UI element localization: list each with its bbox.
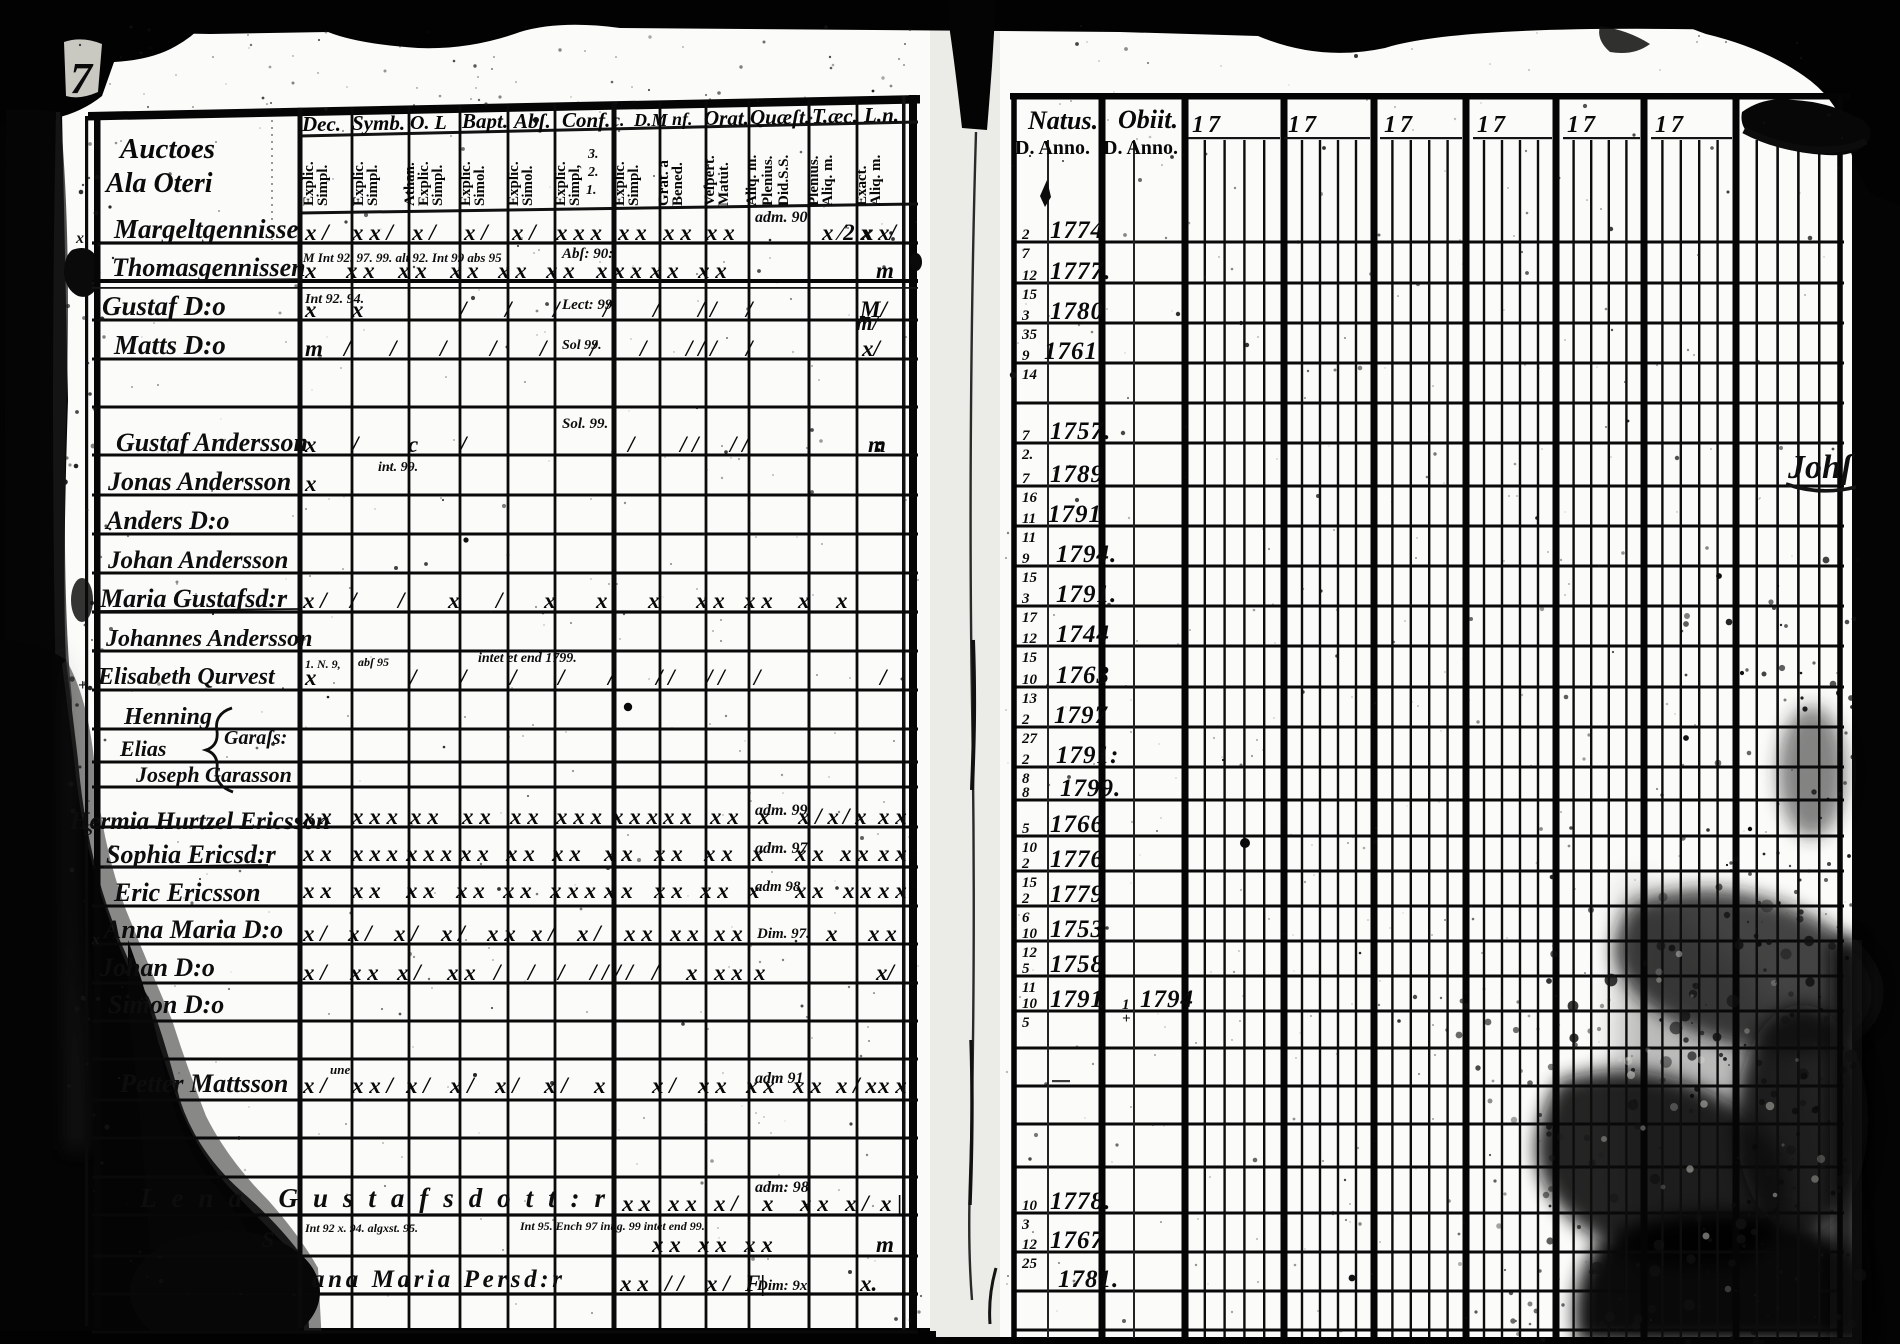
svg-text:Simpl.: Simpl. bbox=[365, 164, 381, 206]
svg-text:11: 11 bbox=[1022, 511, 1036, 527]
svg-text:x: x bbox=[861, 220, 874, 245]
svg-text:x: x bbox=[685, 960, 698, 985]
svg-text:x x x: x x x bbox=[351, 804, 398, 829]
svg-text:2.: 2. bbox=[587, 165, 599, 180]
svg-text:x: x bbox=[304, 432, 317, 457]
svg-text:Abſ.: Abſ. bbox=[512, 109, 551, 133]
svg-text:Gustaf Andersson: Gustaf Andersson bbox=[116, 428, 308, 457]
svg-text:/ /: / / bbox=[728, 432, 751, 457]
svg-text:7: 7 bbox=[70, 54, 94, 103]
svg-text:x x: x x bbox=[651, 1232, 681, 1257]
svg-text:15: 15 bbox=[1022, 287, 1038, 303]
svg-text:Natus.: Natus. bbox=[1027, 106, 1098, 135]
svg-text:3: 3 bbox=[1021, 1217, 1030, 1233]
svg-text:x x: x x bbox=[409, 804, 439, 829]
svg-text:7: 7 bbox=[1022, 428, 1030, 444]
svg-text:Dim. 97.: Dim. 97. bbox=[756, 926, 810, 942]
svg-text:+: + bbox=[78, 677, 87, 694]
svg-text:2: 2 bbox=[1021, 856, 1030, 872]
svg-text:Matts D:o: Matts D:o bbox=[113, 330, 226, 360]
svg-text:x x: x x bbox=[877, 804, 907, 829]
svg-text:x /: x / bbox=[411, 220, 438, 245]
svg-text:x x: x x bbox=[867, 921, 897, 946]
svg-text:x x x: x x x bbox=[549, 878, 596, 903]
svg-text:Obiit.: Obiit. bbox=[1118, 105, 1178, 134]
svg-text:12: 12 bbox=[1022, 268, 1038, 284]
svg-text:x: x bbox=[91, 932, 100, 948]
svg-text:x x: x x bbox=[619, 1271, 649, 1296]
svg-text:x x: x x bbox=[662, 804, 692, 829]
svg-text:2: 2 bbox=[1021, 712, 1030, 728]
svg-text:x x: x x bbox=[695, 588, 725, 613]
svg-text:Int 92 x. 94. algxst. 95.: Int 92 x. 94. algxst. 95. bbox=[304, 1221, 418, 1235]
svg-text:x x: x x bbox=[705, 220, 735, 245]
svg-text:x x: x x bbox=[302, 841, 332, 866]
svg-text:x/: x/ bbox=[875, 960, 897, 985]
svg-text:m̅/: m̅/ bbox=[856, 311, 880, 335]
svg-text:x x: x x bbox=[603, 878, 633, 903]
svg-text:12: 12 bbox=[1022, 1237, 1038, 1253]
svg-text:2: 2 bbox=[1021, 752, 1030, 768]
svg-text:9: 9 bbox=[1022, 551, 1030, 567]
svg-text:1779: 1779 bbox=[1050, 881, 1104, 908]
svg-text:x: x bbox=[753, 960, 766, 985]
svg-text:une: une bbox=[330, 1062, 350, 1077]
svg-text:x / x: x / x bbox=[797, 804, 839, 829]
svg-text:x /: x / bbox=[440, 921, 467, 946]
svg-text:x: x bbox=[304, 471, 317, 496]
svg-text:Thomasgennissen: Thomasgennissen bbox=[112, 253, 306, 282]
svg-text:2: 2 bbox=[1021, 891, 1030, 907]
svg-text:x x: x x bbox=[877, 841, 907, 866]
svg-text:x x: x x bbox=[743, 1232, 773, 1257]
svg-text:x x: x x bbox=[703, 841, 733, 866]
svg-text:int. 99.: int. 99. bbox=[378, 460, 418, 475]
svg-text:x /: x / bbox=[576, 921, 603, 946]
svg-text:Petter Mattsson: Petter Mattsson bbox=[119, 1069, 288, 1098]
svg-text:x x: x x bbox=[545, 258, 575, 283]
svg-text:x x: x x bbox=[351, 878, 381, 903]
svg-text:x: x bbox=[593, 1073, 606, 1098]
svg-text:x x /: x x / bbox=[351, 220, 396, 245]
svg-text:Eric Ericsson: Eric Ericsson bbox=[113, 878, 261, 907]
svg-text:S: S bbox=[84, 822, 93, 839]
svg-text:Simol.: Simol. bbox=[472, 165, 488, 206]
svg-text:abſ 95: abſ 95 bbox=[358, 655, 389, 669]
svg-text:Simpl,: Simpl, bbox=[567, 164, 583, 206]
svg-text:x: x bbox=[647, 588, 660, 613]
svg-text:x: x bbox=[797, 588, 810, 613]
svg-text:m: m bbox=[876, 1232, 894, 1257]
svg-text:O. L: O. L bbox=[410, 112, 447, 134]
svg-text:Simol.: Simol. bbox=[520, 165, 536, 206]
svg-text:Aliq. m.: Aliq. m. bbox=[868, 154, 884, 206]
svg-text:x x: x x bbox=[405, 878, 435, 903]
svg-text:10: 10 bbox=[1022, 1198, 1038, 1214]
svg-text:1766: 1766 bbox=[1050, 811, 1104, 838]
svg-text:1763: 1763 bbox=[1056, 662, 1110, 689]
svg-text:Margeltgennisse: Margeltgennisse bbox=[113, 214, 299, 244]
svg-text:x /: x / bbox=[302, 1073, 329, 1098]
svg-text:Did.S.S.: Did.S.S. bbox=[776, 154, 792, 206]
svg-text:x x: x x bbox=[653, 878, 683, 903]
svg-text:/ / /: / / / bbox=[684, 336, 719, 361]
svg-text:x / x: x / x bbox=[835, 1073, 877, 1098]
svg-text:17: 17 bbox=[1655, 112, 1687, 138]
svg-text:11: 11 bbox=[1022, 530, 1036, 546]
svg-text:x x: x x bbox=[745, 1073, 775, 1098]
svg-text:3.: 3. bbox=[587, 147, 599, 162]
svg-text:adm. 90.: adm. 90. bbox=[755, 209, 811, 226]
svg-text:Henning: Henning bbox=[123, 704, 212, 730]
svg-text:x x: x x bbox=[509, 804, 539, 829]
svg-text:x |: x | bbox=[879, 1191, 902, 1216]
svg-text:x x: x x bbox=[792, 1073, 822, 1098]
svg-text:x /: x / bbox=[347, 921, 374, 946]
svg-text:Johſ: Johſ bbox=[1787, 449, 1856, 486]
svg-text:7: 7 bbox=[1022, 246, 1030, 262]
svg-text:x: x bbox=[351, 297, 364, 322]
svg-text:Quæſt.: Quæſt. bbox=[750, 105, 810, 129]
svg-text:x x: x x bbox=[449, 258, 479, 283]
svg-text:Simpl.: Simpl. bbox=[315, 164, 331, 206]
svg-text:intet et end 1799.: intet et end 1799. bbox=[478, 651, 577, 666]
svg-text:x x: x x bbox=[713, 960, 743, 985]
svg-text:L.n.: L.n. bbox=[863, 103, 899, 127]
svg-text:1776: 1776 bbox=[1050, 846, 1104, 873]
svg-text:25: 25 bbox=[1021, 1256, 1038, 1272]
svg-text:x x: x x bbox=[662, 220, 692, 245]
svg-text:1791: 1791 bbox=[1050, 986, 1104, 1013]
svg-text:x /: x / bbox=[396, 960, 423, 985]
svg-text:x /: x / bbox=[405, 1073, 432, 1098]
svg-text:x x: x x bbox=[617, 220, 647, 245]
svg-text:1757.: 1757. bbox=[1050, 418, 1111, 445]
svg-text:1799.: 1799. bbox=[1060, 775, 1121, 802]
svg-text:1774: 1774 bbox=[1050, 217, 1104, 244]
svg-text:Aliq. m.: Aliq. m. bbox=[820, 154, 836, 206]
svg-text:x: x bbox=[304, 665, 317, 690]
svg-text:x x: x x bbox=[653, 841, 683, 866]
svg-text:x x: x x bbox=[302, 804, 332, 829]
svg-text:Simpl.: Simpl. bbox=[430, 164, 446, 206]
svg-text:2: 2 bbox=[1021, 227, 1030, 243]
svg-text:/ /: / / bbox=[654, 665, 677, 690]
svg-text:x x x: x x x bbox=[351, 841, 398, 866]
svg-text:9: 9 bbox=[1022, 348, 1030, 364]
svg-text:x x: x x bbox=[877, 1073, 907, 1098]
svg-text:x x: x x bbox=[649, 258, 679, 283]
svg-text:x x: x x bbox=[839, 841, 869, 866]
svg-text:Int 95. Ench 97 int g. 99 inte: Int 95. Ench 97 int g. 99 intet end 99. bbox=[519, 1219, 705, 1233]
svg-text:/ /: / / bbox=[663, 1271, 686, 1296]
svg-text:17: 17 bbox=[1477, 112, 1509, 138]
svg-text:/ / / /: / / / / bbox=[588, 960, 635, 985]
svg-text:1753: 1753 bbox=[1050, 916, 1104, 943]
svg-text:1767: 1767 bbox=[1050, 1227, 1105, 1254]
svg-text:+: + bbox=[1122, 1011, 1131, 1027]
svg-text:Elisabeth Qurvest: Elisabeth Qurvest bbox=[97, 664, 276, 690]
svg-text:Conf.: Conf. bbox=[562, 108, 610, 132]
svg-text:1778.: 1778. bbox=[1050, 1188, 1111, 1215]
svg-text:x /: x / bbox=[302, 588, 329, 613]
svg-text:x x: x x bbox=[794, 841, 824, 866]
svg-text:1791: 1791 bbox=[1048, 501, 1102, 528]
svg-text:Anna Maria D:o: Anna Maria D:o bbox=[102, 915, 283, 944]
svg-text:17: 17 bbox=[1022, 610, 1038, 626]
svg-text:x x: x x bbox=[455, 878, 485, 903]
svg-text:x x: x x bbox=[713, 921, 743, 946]
svg-text:Simpl.: Simpl. bbox=[626, 164, 642, 206]
svg-text:5: 5 bbox=[1022, 961, 1030, 977]
svg-text:3: 3 bbox=[1021, 591, 1030, 607]
svg-text:8: 8 bbox=[1022, 785, 1030, 801]
svg-text:x/: x/ bbox=[877, 220, 899, 245]
svg-text:x x x: x x x bbox=[595, 258, 642, 283]
svg-text:17: 17 bbox=[1567, 112, 1599, 138]
svg-text:nf.: nf. bbox=[672, 109, 693, 129]
svg-text:Johan D:o: Johan D:o bbox=[99, 953, 215, 982]
svg-text:x x x: x x x bbox=[555, 804, 602, 829]
svg-text:x x /: x x / bbox=[351, 1073, 396, 1098]
svg-text:x x: x x bbox=[486, 921, 516, 946]
svg-text:13: 13 bbox=[1022, 691, 1038, 707]
svg-text:x: x bbox=[595, 588, 608, 613]
svg-text:Elias: Elias bbox=[119, 736, 166, 761]
svg-text:x /: x / bbox=[463, 220, 490, 245]
svg-text:x/: x/ bbox=[861, 336, 883, 361]
svg-text:14: 14 bbox=[1022, 367, 1038, 383]
svg-text:x x: x x bbox=[743, 588, 773, 613]
svg-text:10: 10 bbox=[1022, 672, 1038, 688]
svg-text:17: 17 bbox=[1192, 112, 1224, 138]
svg-text:12: 12 bbox=[1022, 945, 1038, 961]
svg-text:x /: x / bbox=[705, 1271, 732, 1296]
svg-text:x x: x x bbox=[551, 841, 581, 866]
svg-text:11: 11 bbox=[1022, 980, 1036, 996]
svg-text:D.M: D.M bbox=[633, 110, 668, 130]
svg-text:10: 10 bbox=[1022, 926, 1038, 942]
svg-text:x x: x x bbox=[603, 841, 633, 866]
svg-text:x.: x. bbox=[859, 1271, 877, 1296]
svg-text:Bened.: Bened. bbox=[670, 162, 686, 206]
svg-text:x x: x x bbox=[349, 960, 379, 985]
svg-text:x x: x x bbox=[502, 878, 532, 903]
svg-text:x x: x x bbox=[697, 1232, 727, 1257]
svg-text::: : bbox=[876, 432, 884, 457]
svg-text:x x: x x bbox=[497, 258, 527, 283]
svg-text:x x: x x bbox=[397, 258, 427, 283]
svg-text:x /: x / bbox=[449, 1073, 476, 1098]
svg-text:x x: x x bbox=[877, 878, 907, 903]
svg-text:x x: x x bbox=[794, 878, 824, 903]
svg-text:x x x: x x x bbox=[555, 220, 602, 245]
svg-text:x: x bbox=[304, 258, 317, 283]
svg-text:1794: 1794 bbox=[1140, 986, 1194, 1013]
svg-text:Dec.: Dec. bbox=[301, 112, 341, 136]
svg-text:x /: x / bbox=[713, 1191, 740, 1216]
svg-text:x x: x x bbox=[459, 841, 489, 866]
svg-text:1758: 1758 bbox=[1050, 951, 1104, 978]
svg-text:Hermia Hurtzel Ericsson: Hermia Hurtzel Ericsson bbox=[69, 808, 330, 835]
svg-text:x /: x / bbox=[494, 1073, 521, 1098]
svg-text:x: x bbox=[751, 841, 764, 866]
svg-text:x /: x / bbox=[304, 220, 331, 245]
svg-text:7: 7 bbox=[1022, 471, 1030, 487]
svg-text:/ /: / / bbox=[696, 297, 719, 322]
svg-text:15: 15 bbox=[1022, 570, 1038, 586]
svg-text:1781.: 1781. bbox=[1058, 1266, 1119, 1293]
svg-text:1789: 1789 bbox=[1050, 461, 1104, 488]
svg-text:x x x: x x x bbox=[611, 804, 658, 829]
svg-text:17: 17 bbox=[1288, 112, 1320, 138]
svg-text:x x: x x bbox=[621, 1191, 651, 1216]
svg-text:1777.: 1777. bbox=[1050, 258, 1111, 285]
svg-text:F|: F| bbox=[744, 1271, 765, 1296]
svg-text:Bapt.: Bapt. bbox=[461, 109, 508, 133]
svg-text:S: S bbox=[262, 1227, 274, 1252]
svg-text:Sol. 99.: Sol. 99. bbox=[562, 416, 608, 432]
svg-text:Orat.: Orat. bbox=[704, 106, 749, 130]
svg-text:x x: x x bbox=[461, 804, 491, 829]
svg-text:x x: x x bbox=[699, 878, 729, 903]
svg-text:Ala Oteri: Ala Oteri bbox=[104, 168, 213, 199]
svg-text:c.: c. bbox=[612, 110, 625, 130]
svg-text:x /: x / bbox=[844, 1191, 871, 1216]
svg-text:Matut.: Matut. bbox=[716, 162, 732, 206]
svg-text:1761: 1761 bbox=[1044, 338, 1098, 365]
svg-text:Simon D:o: Simon D:o bbox=[108, 990, 224, 1019]
svg-text:x: x bbox=[757, 804, 770, 829]
svg-text:x: x bbox=[447, 588, 460, 613]
svg-text:x x: x x bbox=[505, 841, 535, 866]
svg-text:5: 5 bbox=[1022, 1015, 1030, 1031]
svg-text:x x: x x bbox=[697, 1073, 727, 1098]
svg-text:1797: 1797 bbox=[1054, 702, 1109, 729]
svg-text:Joseph Garasson: Joseph Garasson bbox=[135, 762, 292, 787]
svg-text:ana Maria Persd:r: ana Maria Persd:r bbox=[312, 1266, 562, 1293]
svg-text:Auctoes: Auctoes bbox=[118, 133, 215, 165]
svg-text:T.æc.: T.æc. bbox=[812, 104, 858, 128]
svg-text:10: 10 bbox=[1022, 996, 1038, 1012]
svg-text:35: 35 bbox=[1021, 327, 1038, 343]
svg-text:Anders D:o: Anders D:o bbox=[104, 506, 230, 535]
svg-text:x /: x / bbox=[543, 1073, 570, 1098]
svg-text:27: 27 bbox=[1021, 731, 1038, 747]
svg-text:1794.: 1794. bbox=[1056, 541, 1117, 568]
svg-text:15: 15 bbox=[1022, 875, 1038, 891]
svg-text:12: 12 bbox=[1022, 631, 1038, 647]
svg-text:Johan Andersson: Johan Andersson bbox=[107, 547, 288, 574]
svg-text:D. Anno.: D. Anno. bbox=[1015, 137, 1090, 159]
svg-text:1.: 1. bbox=[586, 183, 597, 198]
svg-text:x x: x x bbox=[842, 878, 872, 903]
svg-text:m: m bbox=[876, 258, 894, 283]
svg-text:5: 5 bbox=[1022, 821, 1030, 837]
svg-text:/ /: / / bbox=[704, 665, 727, 690]
svg-text:1780: 1780 bbox=[1050, 298, 1104, 325]
svg-text:x /: x / bbox=[651, 1073, 678, 1098]
svg-text:x x: x x bbox=[667, 1191, 697, 1216]
svg-text:10: 10 bbox=[1022, 840, 1038, 856]
svg-text:/ x: / x bbox=[841, 804, 867, 829]
svg-text:x x: x x bbox=[446, 960, 476, 985]
svg-text:x /: x / bbox=[393, 921, 420, 946]
svg-text:/ /: / / bbox=[678, 432, 701, 457]
svg-text:x x: x x bbox=[345, 258, 375, 283]
svg-text:16: 16 bbox=[1022, 490, 1038, 506]
svg-text:x: x bbox=[761, 1191, 774, 1216]
svg-text:x x: x x bbox=[709, 804, 739, 829]
svg-text:c: c bbox=[408, 432, 418, 457]
svg-text:x: x bbox=[747, 878, 760, 903]
svg-text:x x: x x bbox=[669, 921, 699, 946]
svg-text:x: x bbox=[835, 588, 848, 613]
svg-text:3: 3 bbox=[1021, 308, 1030, 324]
svg-text:x /: x / bbox=[302, 921, 329, 946]
svg-text:x x: x x bbox=[799, 1191, 829, 1216]
svg-text:x x: x x bbox=[623, 921, 653, 946]
svg-text:Aliq. m.: Aliq. m. bbox=[744, 154, 760, 206]
svg-text:x: x bbox=[75, 230, 84, 247]
svg-text:2.: 2. bbox=[1021, 447, 1033, 463]
svg-text:6: 6 bbox=[1022, 910, 1030, 926]
svg-text:x: x bbox=[304, 297, 317, 322]
svg-text:15: 15 bbox=[1022, 650, 1038, 666]
svg-text:17: 17 bbox=[1384, 112, 1416, 138]
svg-text:Jonas Andersson: Jonas Andersson bbox=[107, 467, 291, 496]
svg-text:x /: x / bbox=[530, 921, 557, 946]
svg-text:Garaſs:: Garaſs: bbox=[224, 727, 287, 749]
svg-text:Johannes Andersson: Johannes Andersson bbox=[105, 626, 313, 652]
svg-text:x x: x x bbox=[302, 878, 332, 903]
svg-text:x /: x / bbox=[511, 220, 538, 245]
svg-text:x /: x / bbox=[302, 960, 329, 985]
svg-text:Gustaf D:o: Gustaf D:o bbox=[102, 291, 226, 321]
svg-text:x: x bbox=[543, 588, 556, 613]
svg-text:D. Anno.: D. Anno. bbox=[1103, 137, 1178, 159]
svg-text:Plenius.: Plenius. bbox=[760, 155, 776, 206]
svg-text:x x x: x x x bbox=[405, 841, 452, 866]
svg-text:x x: x x bbox=[697, 258, 727, 283]
svg-text:x: x bbox=[825, 921, 838, 946]
svg-text:1791:: 1791: bbox=[1056, 742, 1119, 769]
svg-text:Symb.: Symb. bbox=[352, 111, 405, 135]
